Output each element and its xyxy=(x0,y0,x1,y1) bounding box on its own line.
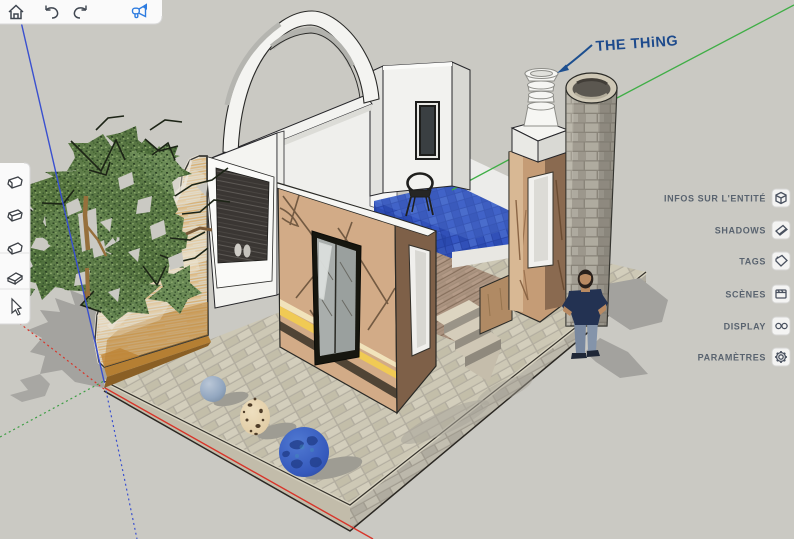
svg-text:PARAMÈTRES: PARAMÈTRES xyxy=(698,353,766,363)
svg-text:THE THiNG: THE THiNG xyxy=(595,33,679,55)
svg-text:SHADOWS: SHADOWS xyxy=(715,226,766,236)
svg-text:SCÈNES: SCÈNES xyxy=(725,290,766,300)
svg-text:INFOS SUR L'ENTITÉ: INFOS SUR L'ENTITÉ xyxy=(664,194,766,204)
svg-text:TAGS: TAGS xyxy=(739,257,766,267)
svg-text:DISPLAY: DISPLAY xyxy=(724,322,766,332)
